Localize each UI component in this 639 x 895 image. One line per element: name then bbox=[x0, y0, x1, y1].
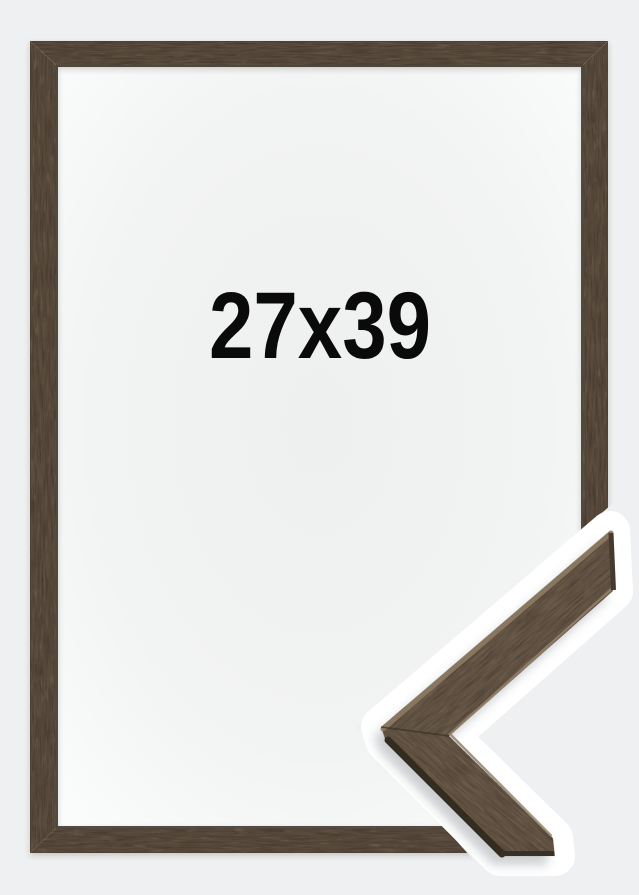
frame-left-bar bbox=[30, 41, 56, 853]
product-image-canvas: 27x39 bbox=[0, 0, 639, 895]
corner-miter-end-face bbox=[611, 533, 614, 590]
size-label: 27x39 bbox=[209, 273, 431, 379]
frame-product-photo: 27x39 bbox=[0, 0, 639, 895]
frame-top-bar bbox=[30, 41, 608, 65]
